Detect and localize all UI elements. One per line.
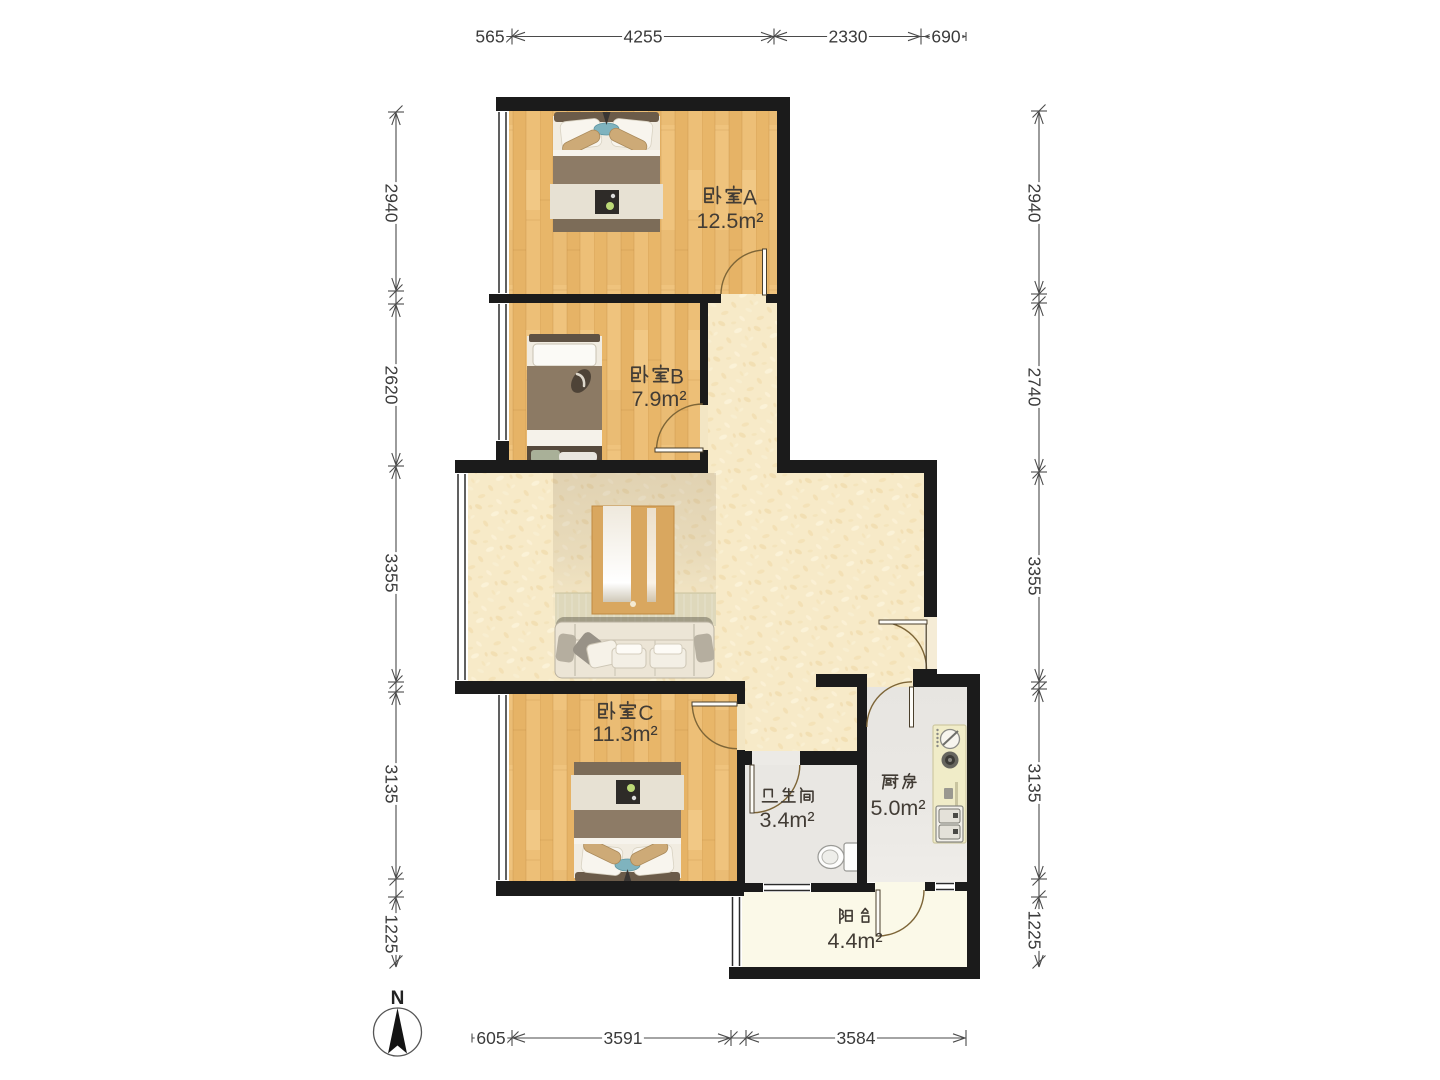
svg-text:605: 605 [476,1028,505,1048]
svg-text:1225: 1225 [381,915,401,954]
svg-text:2740: 2740 [1024,368,1044,407]
svg-text:4.4m²: 4.4m² [828,929,883,953]
svg-text:565: 565 [475,26,504,46]
svg-text:3355: 3355 [1024,557,1044,596]
svg-text:3584: 3584 [837,1028,876,1048]
svg-text:7.9m²: 7.9m² [632,387,687,411]
svg-text:11.3m²: 11.3m² [592,722,657,746]
svg-text:2940: 2940 [381,184,401,223]
svg-text:2940: 2940 [1024,184,1044,223]
svg-text:2620: 2620 [381,366,401,405]
svg-text:4255: 4255 [624,26,663,46]
svg-text:12.5m²: 12.5m² [697,209,764,233]
svg-text:N: N [391,988,405,1009]
svg-text:3355: 3355 [381,554,401,593]
svg-text:3135: 3135 [1024,764,1044,803]
svg-text:B: B [670,366,684,389]
svg-text:3135: 3135 [381,765,401,804]
svg-text:5.0m²: 5.0m² [871,796,926,820]
svg-text:690: 690 [931,26,960,46]
svg-text:3.4m²: 3.4m² [760,808,815,832]
svg-text:A: A [743,187,757,210]
svg-text:2330: 2330 [829,26,868,46]
svg-text:3591: 3591 [604,1028,643,1048]
svg-text:1225: 1225 [1024,911,1044,950]
